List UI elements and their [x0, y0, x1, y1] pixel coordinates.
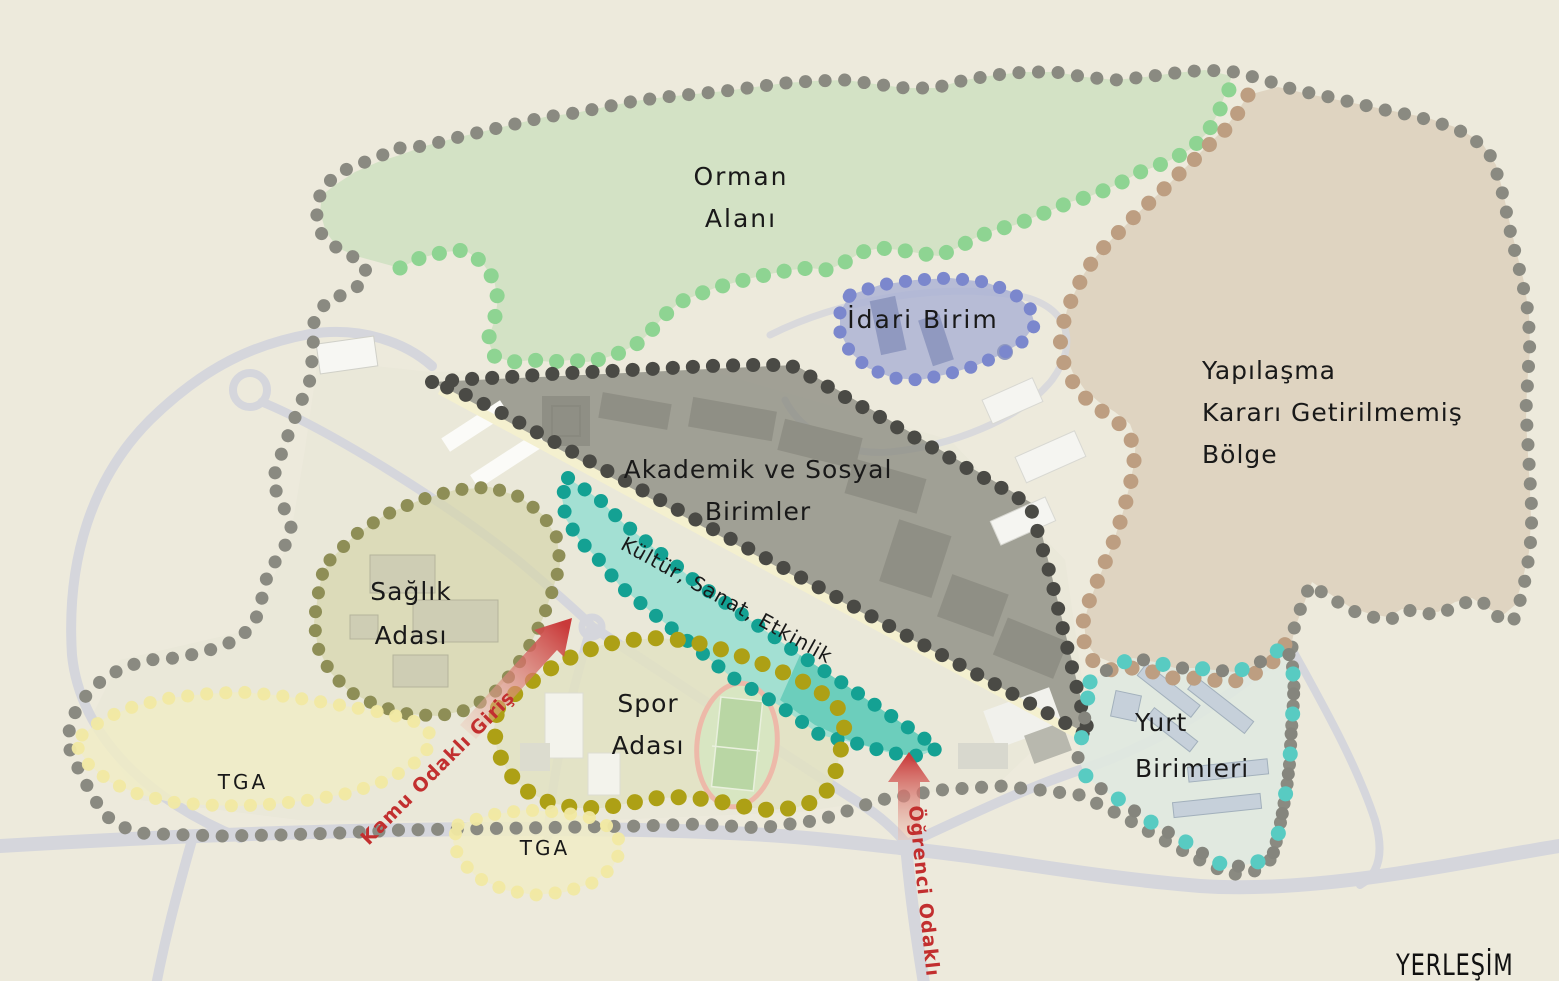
yurt-line1: Yurt	[1135, 700, 1249, 746]
saglik-line1: Sağlık	[370, 570, 451, 614]
zone-label-saglik: Sağlık Adası	[370, 570, 451, 658]
zone-label-akademik: Akademik ve Sosyal Birimler	[624, 449, 893, 533]
spor-line1: Spor	[612, 683, 685, 725]
map-title-text: YERLEŞİM	[1396, 948, 1514, 982]
akademik-line1: Akademik ve Sosyal	[624, 449, 893, 491]
idari-label: İdari Birim	[847, 299, 998, 341]
orman-line1: Orman	[693, 156, 788, 198]
zone-label-yurt: Yurt Birimleri	[1135, 700, 1249, 792]
yapilasma-line1: Yapılaşma	[1202, 350, 1463, 392]
map-title: YERLEŞİM	[1396, 948, 1514, 982]
spor-line2: Adası	[612, 725, 685, 767]
zone-label-idari: İdari Birim	[847, 299, 998, 341]
zone-label-tga-south: TGA	[520, 827, 570, 869]
bottom-white-strip	[0, 981, 1559, 1007]
zone-label-orman: Orman Alanı	[693, 156, 788, 240]
yapilasma-line2: Kararı Getirilmemiş	[1202, 392, 1463, 434]
campus-master-plan: Orman Alanı İdari Birim Yapılaşma Kararı…	[0, 0, 1559, 1007]
zone-label-spor: Spor Adası	[612, 683, 685, 767]
yurt-line2: Birimleri	[1135, 746, 1249, 792]
yapilasma-line3: Bölge	[1202, 434, 1463, 476]
saglik-line2: Adası	[370, 614, 451, 658]
akademik-line2: Birimler	[624, 491, 893, 533]
zone-label-yapilasma: Yapılaşma Kararı Getirilmemiş Bölge	[1202, 350, 1463, 476]
tga-south-label: TGA	[520, 836, 570, 860]
orman-line2: Alanı	[693, 198, 788, 240]
tga-west-label: TGA	[218, 770, 268, 794]
zone-label-tga-west: TGA	[218, 761, 268, 803]
